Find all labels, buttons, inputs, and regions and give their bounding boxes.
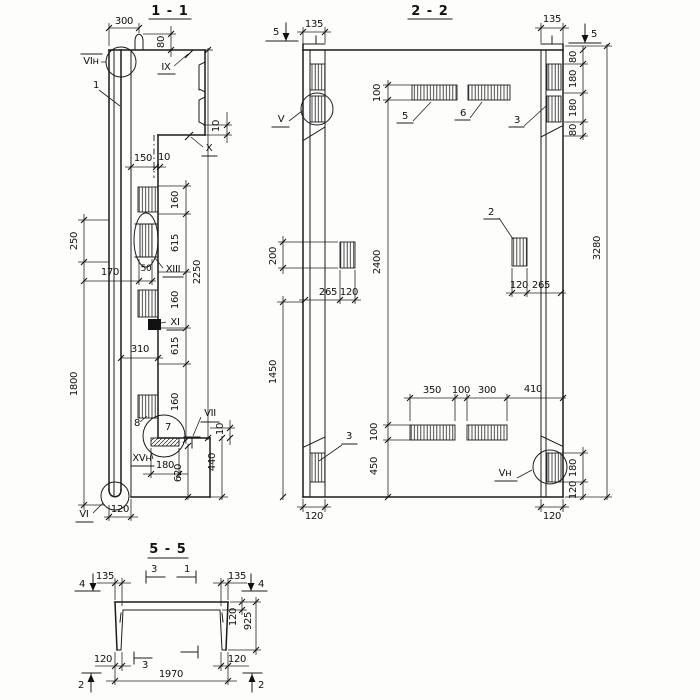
dim-120: 120 (568, 481, 579, 499)
dim-925: 925 (243, 612, 254, 630)
cut-label: 1 (184, 564, 190, 575)
cut-label: 3 (142, 660, 148, 671)
cut-marker-1-top: 1 (177, 564, 196, 583)
dim-120: 120 (305, 511, 323, 522)
label-2: 2 (488, 207, 494, 218)
cut-marker-2-right: 2 (243, 673, 264, 692)
dim-135: 135 (96, 571, 114, 582)
cut-marker-2-left: 2 (78, 673, 101, 692)
dim-160: 160 (170, 291, 181, 309)
dim-80: 80 (568, 51, 579, 63)
section-1-1: 1 - 1 (69, 4, 235, 522)
dim-300: 300 (115, 16, 133, 27)
dim-200: 200 (268, 247, 279, 265)
embed-plate-5 (412, 85, 457, 100)
label-3: 3 (514, 115, 520, 126)
dim-120: 120 (510, 280, 528, 291)
mark-x: X (206, 143, 213, 154)
edge-grooves (199, 62, 205, 125)
rib-embed (547, 453, 561, 482)
embed-plate (138, 290, 158, 317)
dim-10: 10 (211, 120, 222, 132)
cut-label: 5 (591, 29, 597, 40)
section-2-2-title: 2 - 2 (411, 4, 449, 19)
dim-10: 10 (158, 152, 170, 163)
dim-615: 615 (170, 234, 181, 252)
dim-1800: 1800 (69, 372, 80, 396)
dim-80: 80 (568, 124, 579, 136)
dim-450: 450 (369, 457, 380, 475)
dim-180: 180 (568, 99, 579, 117)
dim-265: 265 (532, 280, 550, 291)
embed-plate-6 (468, 85, 510, 100)
dim-135: 135 (543, 14, 561, 25)
embed-plate-2 (512, 238, 527, 266)
rib-embed (310, 453, 325, 482)
mark-xvn: XVн (132, 453, 151, 464)
dim-100: 100 (369, 423, 380, 441)
mark-vin: VIн (83, 56, 98, 67)
mark-8: 8 (134, 418, 140, 429)
dim-135: 135 (305, 19, 323, 30)
embed-plate (410, 425, 455, 440)
dim-180: 180 (568, 70, 579, 88)
bottom-plate-7 (151, 438, 179, 446)
cut-label: 3 (151, 564, 157, 575)
dim-3280: 3280 (592, 236, 603, 260)
rib-embed (547, 64, 561, 90)
mark-xiii: XIII (166, 264, 181, 275)
dim-300: 300 (478, 385, 496, 396)
section-1-1-title: 1 - 1 (151, 4, 189, 19)
dim-440: 440 (207, 453, 218, 471)
embed-plate (138, 187, 158, 212)
dim-150: 150 (134, 153, 152, 164)
section-2-2: 2 - 2 (266, 4, 612, 522)
dim-310: 310 (131, 344, 149, 355)
section-5-5-title: 5 - 5 (149, 542, 187, 557)
dim-50: 50 (141, 264, 152, 274)
dim-100: 100 (452, 385, 470, 396)
lifting-loop (135, 34, 143, 50)
mark-vii: VII (204, 408, 216, 419)
dim-120: 120 (228, 608, 239, 626)
dim-265: 265 (319, 287, 337, 298)
dim-615: 615 (170, 337, 181, 355)
label-3: 3 (346, 431, 352, 442)
cut-marker-bottom-right (181, 646, 198, 658)
dim-2400: 2400 (372, 250, 383, 274)
embed-plate-8 (138, 395, 158, 418)
dim-1450: 1450 (268, 360, 279, 384)
dim-180: 180 (568, 459, 579, 477)
rib-embed (310, 64, 325, 90)
dim-80: 80 (156, 36, 167, 48)
cut-label: 4 (79, 579, 85, 590)
mark-xi: XI (170, 317, 179, 328)
cut-marker-5-left: 5 (266, 23, 298, 41)
dim-100: 100 (372, 84, 383, 102)
dim-620: 620 (173, 464, 184, 482)
mark-v: V (278, 114, 285, 125)
rib-embed (547, 96, 561, 122)
dim-120: 120 (228, 654, 246, 665)
dim-120: 120 (340, 287, 358, 298)
cut-label: 5 (273, 27, 279, 38)
panel-drawing: 1 - 1 (0, 0, 700, 700)
mark-1: 1 (93, 80, 99, 91)
label-6: 6 (460, 108, 466, 119)
rib-embed (310, 96, 325, 122)
cut-marker-5-right: 5 (569, 24, 601, 43)
cut-label: 2 (258, 680, 264, 691)
dim-170: 170 (101, 267, 119, 278)
dim-160: 160 (170, 393, 181, 411)
label-5: 5 (402, 111, 408, 122)
embed-plate (340, 242, 355, 268)
embed-plate (467, 425, 507, 440)
mark-vn: Vн (499, 468, 512, 479)
dim-120: 120 (94, 654, 112, 665)
cut-marker-3-bottom: 3 (134, 652, 152, 671)
cut-marker-3-top: 3 (146, 564, 165, 583)
mark-7: 7 (165, 422, 171, 433)
dim-135: 135 (228, 571, 246, 582)
cut-label: 2 (78, 680, 84, 691)
dim-120: 120 (111, 504, 129, 515)
dim-120: 120 (543, 511, 561, 522)
section-5-5: 5 - 5 4 4 3 (75, 542, 267, 692)
mark-vi: VI (79, 509, 88, 520)
dim-180: 180 (156, 460, 174, 471)
dim-250: 250 (69, 232, 80, 250)
cut-label: 4 (258, 579, 264, 590)
drawing-sheet: 1 - 1 (0, 0, 700, 700)
dim-350: 350 (423, 385, 441, 396)
mark-ix: IX (161, 62, 171, 73)
dim-410: 410 (524, 384, 542, 395)
dim-10: 10 (215, 423, 226, 435)
dim-2250: 2250 (192, 260, 203, 284)
dim-1970: 1970 (159, 669, 183, 680)
dim-160: 160 (170, 191, 181, 209)
